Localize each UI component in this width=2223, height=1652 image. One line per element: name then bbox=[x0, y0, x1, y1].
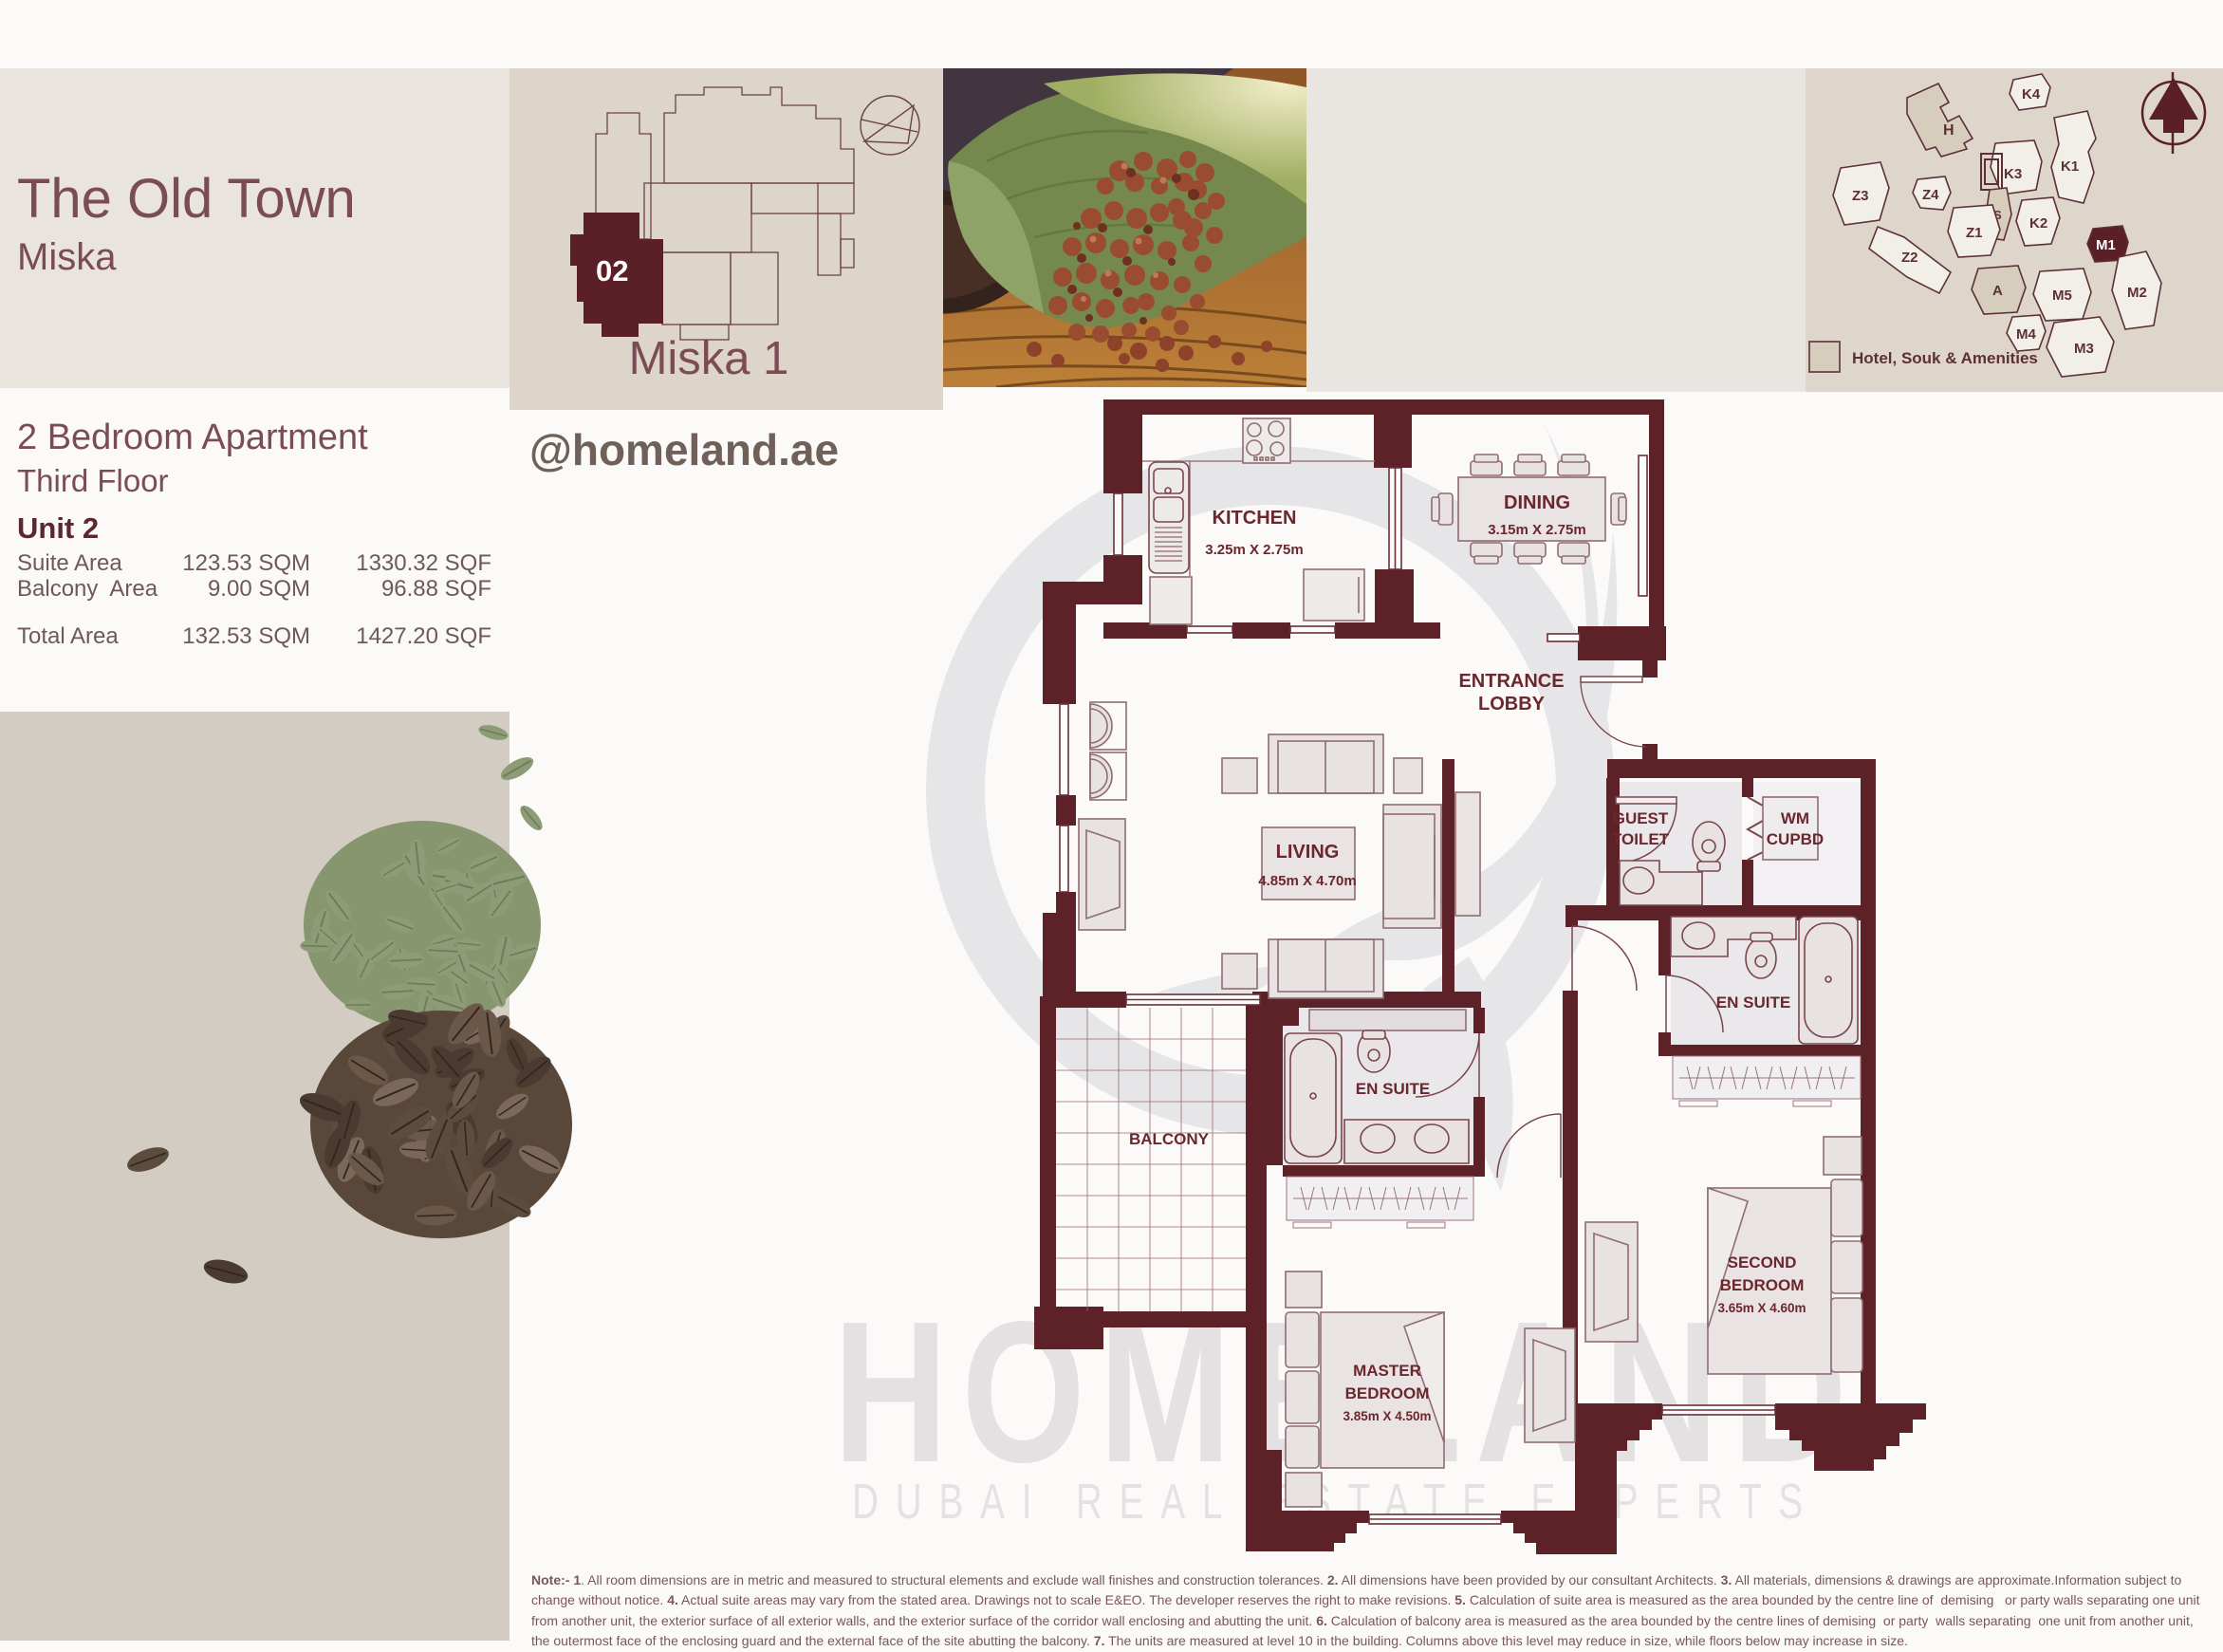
svg-text:ENTRANCE: ENTRANCE bbox=[1458, 671, 1564, 692]
svg-text:LIVING: LIVING bbox=[1276, 842, 1340, 863]
svg-text:EN SUITE: EN SUITE bbox=[1716, 993, 1790, 1012]
svg-text:TOILET: TOILET bbox=[1612, 830, 1670, 848]
svg-text:Miska 1: Miska 1 bbox=[629, 333, 789, 384]
svg-text:3.85m X 4.50m: 3.85m X 4.50m bbox=[1343, 1409, 1431, 1423]
svg-text:LOBBY: LOBBY bbox=[1478, 694, 1546, 715]
svg-text:Z2: Z2 bbox=[1901, 250, 1918, 266]
svg-text:Hotel, Souk & Amenities: Hotel, Souk & Amenities bbox=[1852, 349, 2038, 367]
svg-text:3.15m X 2.75m: 3.15m X 2.75m bbox=[1488, 522, 1585, 538]
svg-text:N: N bbox=[2165, 109, 2184, 139]
svg-text:K4: K4 bbox=[2022, 86, 2041, 102]
svg-text:3.25m X 2.75m: 3.25m X 2.75m bbox=[1205, 542, 1303, 558]
svg-text:WM: WM bbox=[1781, 809, 1809, 827]
svg-text:BALCONY: BALCONY bbox=[1129, 1130, 1210, 1148]
svg-text:DINING: DINING bbox=[1504, 492, 1570, 513]
svg-text:M5: M5 bbox=[2052, 288, 2072, 304]
svg-text:MASTER: MASTER bbox=[1353, 1362, 1421, 1380]
svg-text:CUPBD: CUPBD bbox=[1767, 830, 1824, 848]
svg-text:Z3: Z3 bbox=[1852, 188, 1869, 204]
svg-text:4.85m X 4.70m: 4.85m X 4.70m bbox=[1258, 873, 1356, 889]
svg-text:GUEST: GUEST bbox=[1613, 809, 1669, 827]
svg-text:A: A bbox=[1992, 283, 2003, 299]
svg-text:H: H bbox=[1943, 122, 1954, 139]
svg-text:M3: M3 bbox=[2074, 341, 2094, 357]
svg-text:K2: K2 bbox=[2029, 215, 2047, 232]
svg-text:M4: M4 bbox=[2016, 326, 2036, 343]
svg-text:BEDROOM: BEDROOM bbox=[1720, 1276, 1805, 1294]
svg-text:Z1: Z1 bbox=[1966, 225, 1983, 241]
svg-text:M2: M2 bbox=[2127, 285, 2147, 301]
svg-text:3.65m X 4.60m: 3.65m X 4.60m bbox=[1717, 1301, 1806, 1315]
svg-text:K1: K1 bbox=[2061, 158, 2079, 175]
svg-text:Z4: Z4 bbox=[1922, 187, 1939, 203]
svg-text:EN SUITE: EN SUITE bbox=[1356, 1080, 1430, 1098]
svg-text:02: 02 bbox=[596, 254, 628, 288]
svg-text:K3: K3 bbox=[2004, 166, 2022, 182]
svg-text:KITCHEN: KITCHEN bbox=[1213, 508, 1297, 529]
svg-text:BEDROOM: BEDROOM bbox=[1345, 1384, 1430, 1402]
svg-text:M1: M1 bbox=[2096, 237, 2116, 253]
svg-text:SECOND: SECOND bbox=[1728, 1253, 1797, 1271]
